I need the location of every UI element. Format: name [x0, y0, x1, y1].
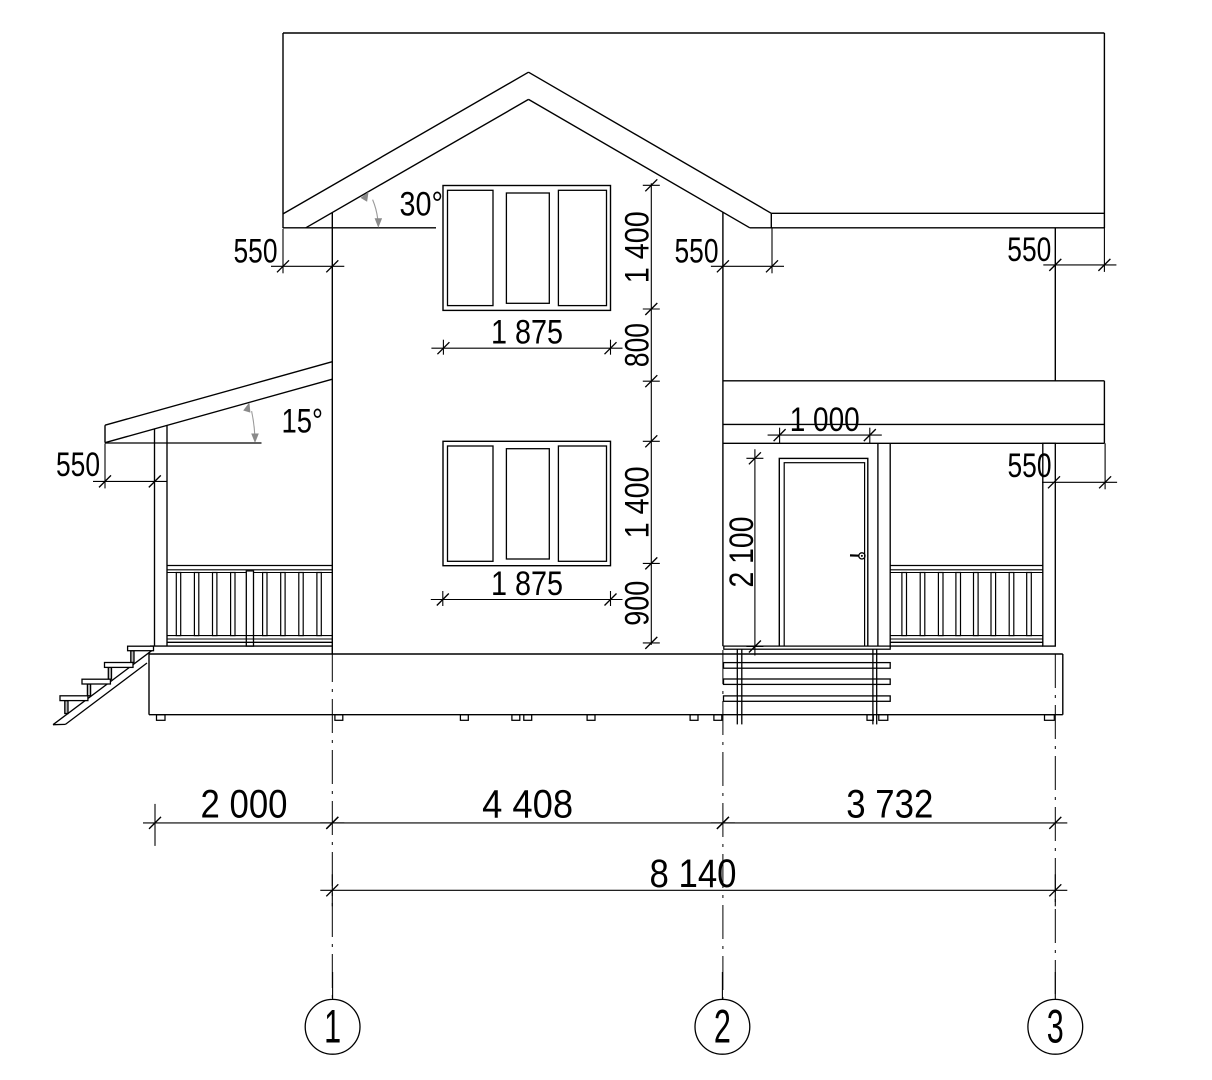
- svg-text:1 400: 1 400: [619, 211, 657, 283]
- svg-text:1 875: 1 875: [491, 565, 563, 603]
- svg-text:2: 2: [714, 999, 731, 1052]
- svg-text:1 875: 1 875: [491, 314, 563, 352]
- svg-text:8 140: 8 140: [650, 852, 737, 896]
- svg-text:3 732: 3 732: [846, 783, 933, 827]
- svg-text:1 000: 1 000: [790, 401, 860, 439]
- svg-text:550: 550: [1007, 231, 1051, 269]
- svg-text:550: 550: [234, 233, 278, 271]
- svg-text:800: 800: [619, 323, 657, 367]
- svg-text:550: 550: [56, 446, 100, 484]
- svg-text:3: 3: [1047, 999, 1064, 1052]
- svg-text:550: 550: [675, 233, 719, 271]
- svg-text:4 408: 4 408: [482, 783, 573, 827]
- svg-text:2 100: 2 100: [723, 517, 761, 588]
- svg-text:900: 900: [619, 581, 657, 626]
- svg-text:1: 1: [324, 999, 341, 1052]
- svg-text:2 000: 2 000: [201, 782, 288, 826]
- svg-text:1 400: 1 400: [619, 466, 657, 538]
- svg-text:30°: 30°: [400, 186, 444, 224]
- svg-text:15°: 15°: [282, 403, 324, 441]
- svg-text:550: 550: [1008, 447, 1052, 485]
